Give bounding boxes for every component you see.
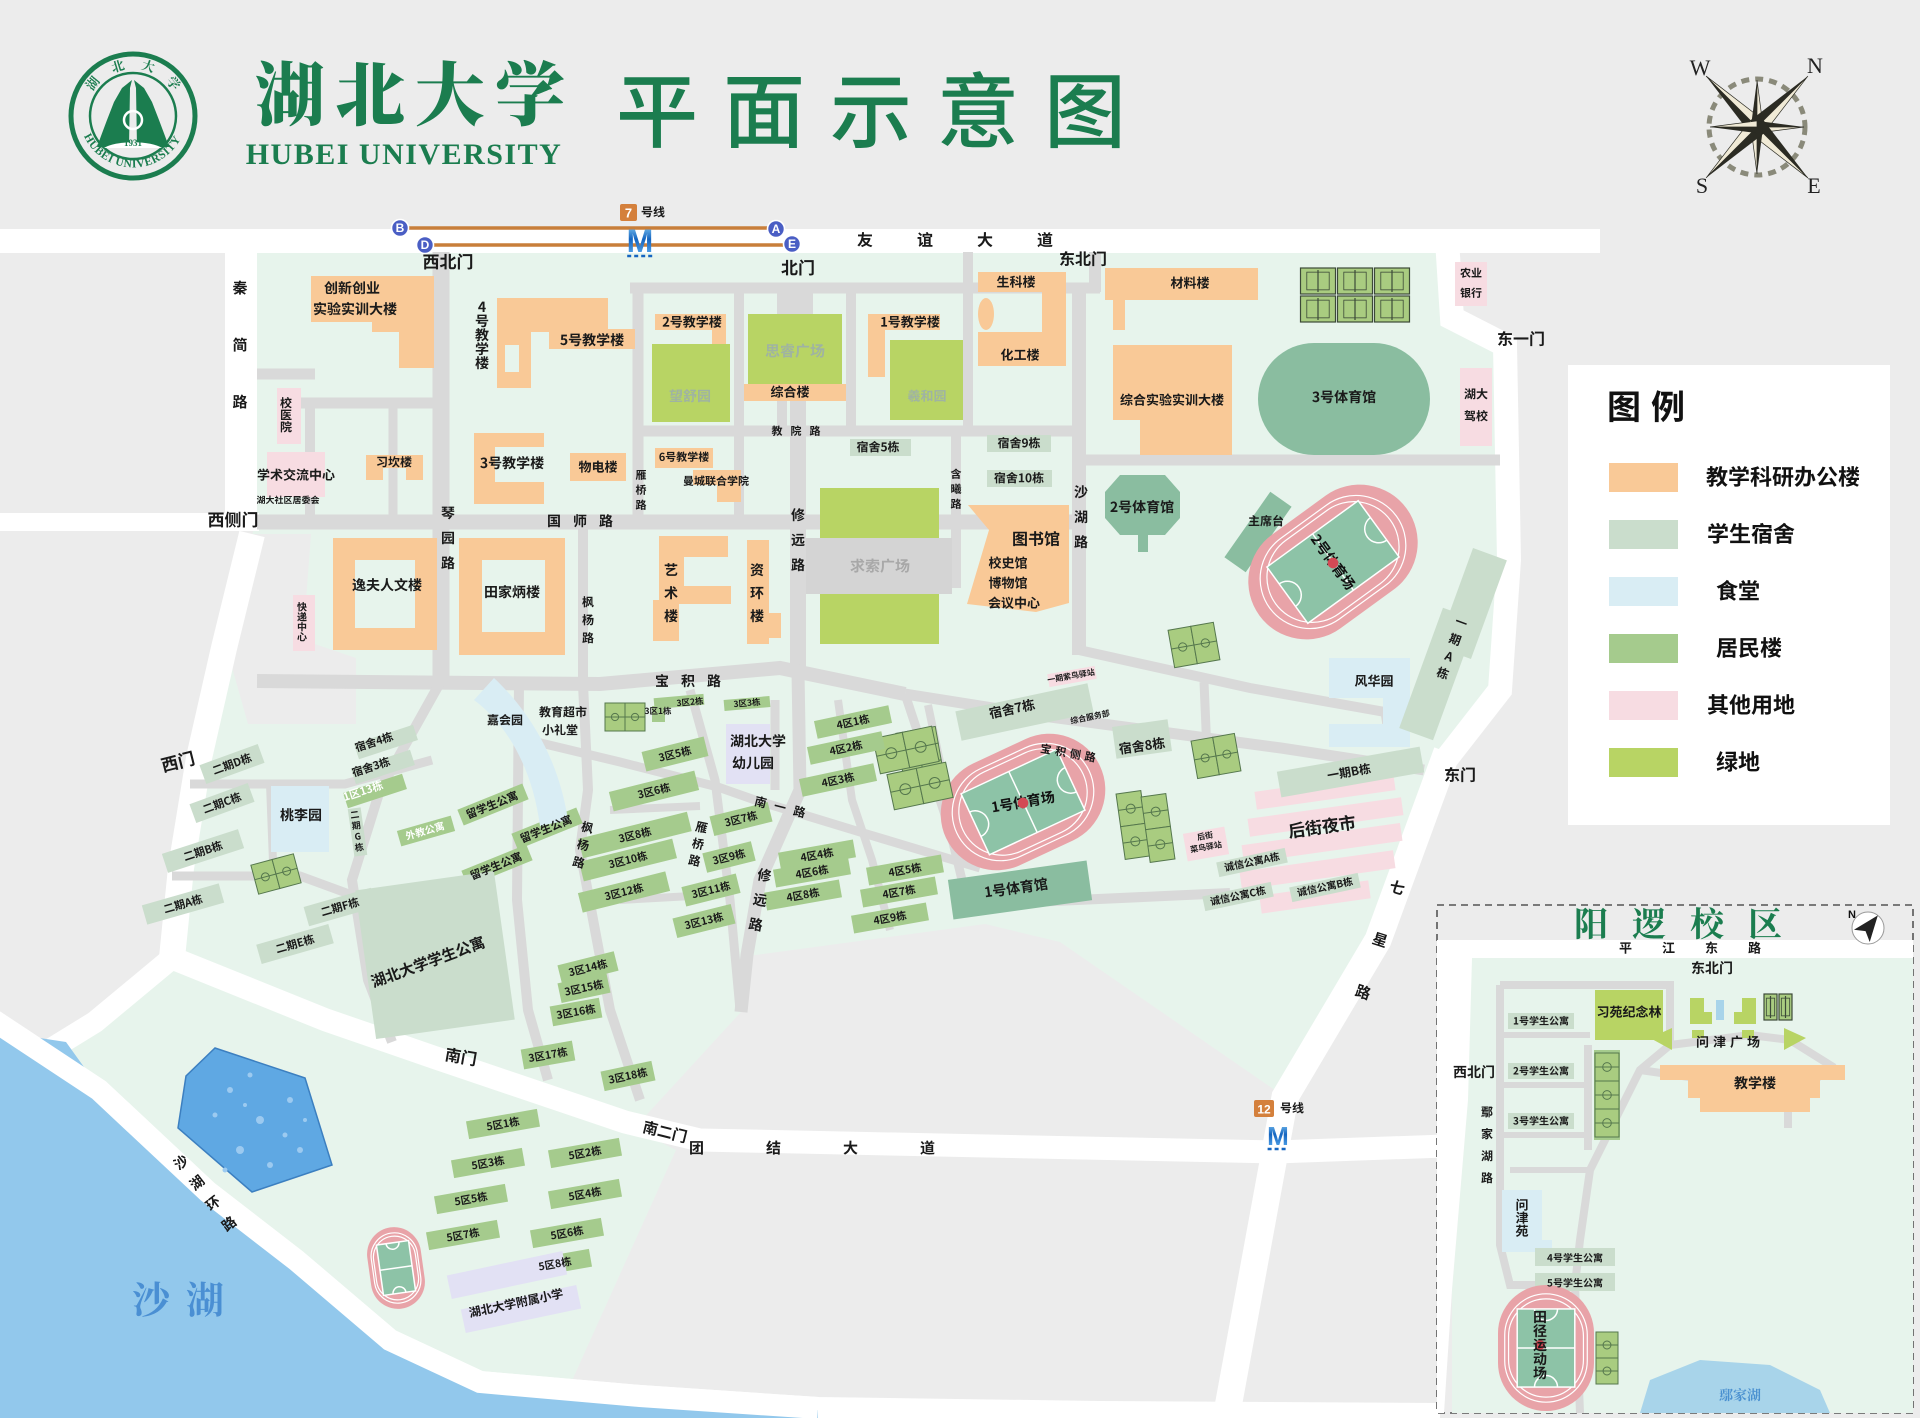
svg-text:12: 12	[1257, 1103, 1271, 1117]
svg-text:HUBEI UNIVERSITY: HUBEI UNIVERSITY	[246, 138, 563, 171]
svg-text:E: E	[788, 237, 796, 251]
svg-text:M: M	[1267, 1121, 1289, 1151]
svg-text:N: N	[1848, 909, 1856, 921]
svg-text:1931: 1931	[124, 138, 143, 148]
svg-text:S: S	[1696, 173, 1708, 198]
svg-text:W: W	[1690, 55, 1711, 80]
svg-text:B: B	[396, 221, 405, 235]
svg-text:E: E	[1807, 173, 1820, 198]
svg-text:D: D	[421, 238, 430, 252]
svg-text:7: 7	[625, 206, 632, 221]
svg-text:N: N	[1807, 53, 1823, 78]
svg-text:A: A	[772, 222, 781, 236]
svg-text:M: M	[627, 223, 654, 259]
